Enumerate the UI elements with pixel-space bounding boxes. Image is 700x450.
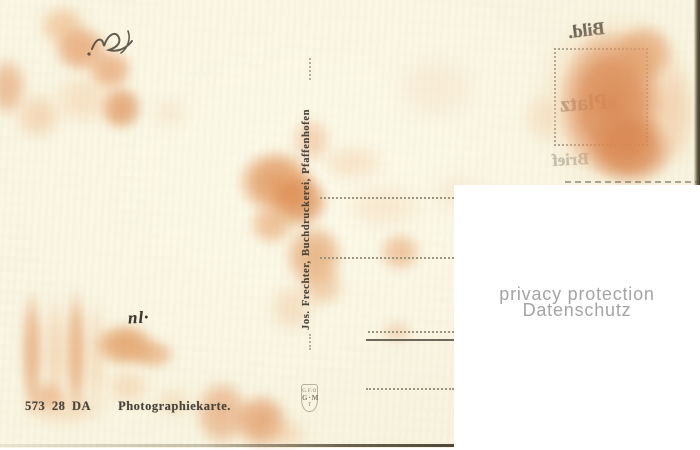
postcard-scan: Bild. Platz Brief Jos. Frechter, Buchdru…	[0, 0, 700, 448]
card-bottom-edge	[0, 444, 454, 447]
publisher-imprint: Jos. Frechter, Buchdruckerei, Pfaffenhof…	[301, 84, 318, 330]
mirrored-ink-text-top: Bild.	[567, 18, 606, 43]
address-line	[366, 339, 454, 341]
stain-blob	[318, 144, 386, 182]
stain-blob	[44, 293, 66, 415]
series-number: 573 28 DA	[25, 399, 91, 413]
printer-emblem: G.F.O G·M T	[301, 384, 318, 412]
dotted-leader-bottom	[309, 334, 311, 350]
stain-blob	[150, 95, 190, 130]
stain-blob	[0, 56, 28, 118]
ink-smudge-line	[565, 181, 698, 183]
handwriting-squiggle	[83, 26, 141, 62]
mirrored-ink-text-bottom: Brief	[552, 149, 590, 171]
stain-blob	[128, 338, 176, 370]
emblem-line-3: T	[302, 403, 317, 408]
stain-blob	[232, 392, 290, 450]
emblem-line-2: G·M	[302, 395, 317, 402]
mirrored-ink-text-middle: Platz	[559, 88, 608, 117]
stain-blob	[38, 4, 88, 48]
address-line	[368, 331, 454, 333]
stain-blob	[248, 202, 296, 246]
stain-blob	[378, 232, 422, 272]
address-line	[366, 388, 454, 390]
address-line	[320, 197, 454, 199]
stain-blob	[52, 72, 116, 126]
card-imprint: 573 28 DAPhotographiekarte.	[25, 399, 231, 414]
privacy-watermark-line2: Datenschutz	[454, 302, 700, 318]
card-right-edge	[694, 0, 700, 185]
stain-blob	[98, 84, 144, 132]
stain-blob	[652, 58, 696, 170]
address-line	[320, 257, 454, 259]
stain-blob	[392, 52, 480, 124]
stain-blob	[86, 298, 106, 415]
emblem-line-1: G.F.O	[302, 389, 317, 394]
stain-blob	[268, 172, 330, 230]
privacy-overlay: privacy protection Datenschutz	[454, 185, 700, 448]
stain-blob	[14, 92, 62, 140]
card-type-label: Photographiekarte.	[118, 399, 231, 413]
dotted-leader-top	[309, 58, 311, 80]
handwriting-mark: nl·	[127, 307, 149, 328]
stain-blob	[93, 322, 157, 368]
stain-blob	[342, 182, 426, 230]
stain-blob	[20, 288, 44, 416]
